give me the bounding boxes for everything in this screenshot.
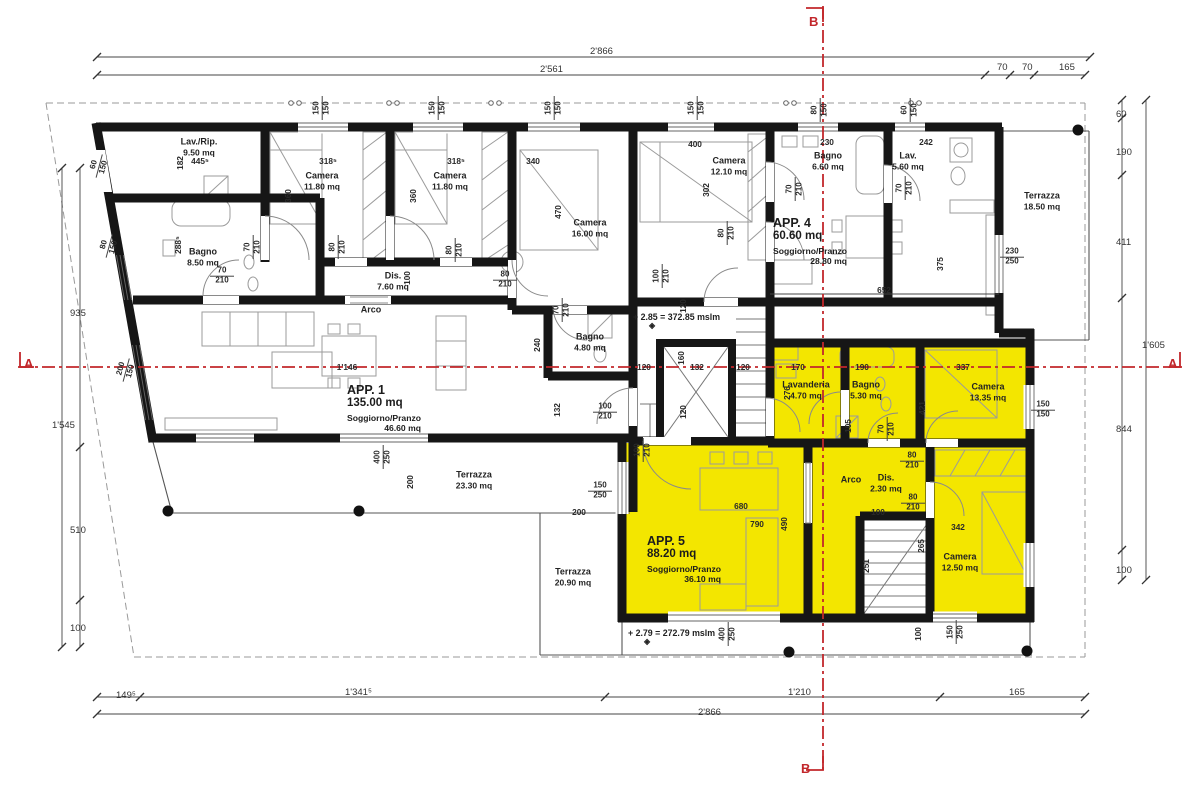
interior-dimension: 230 — [820, 137, 834, 147]
room-label: Camera11.80 mq — [304, 171, 340, 192]
opening-dimension: 150250 — [947, 620, 966, 644]
opening-dimension: 70210 — [896, 176, 915, 200]
interior-dimension: 490 — [779, 517, 789, 531]
apartment-label: APP. 588.20 mqSoggiorno/Pranzo36.10 mq — [647, 534, 721, 584]
room-label: Bagno6.60 mq — [812, 151, 844, 172]
interior-dimension: 400 — [688, 139, 702, 149]
opening-dimension: 100210 — [653, 264, 672, 288]
interior-dimension: 680 — [734, 501, 748, 511]
boundary-dimension: 1'210 — [788, 687, 811, 698]
interior-dimension: 105 — [843, 419, 853, 433]
room-label: Bagno8.50 mq — [187, 247, 219, 268]
opening-dimension: 70210 — [210, 267, 234, 286]
apartment-label: APP. 1135.00 mqSoggiorno/Pranzo46.60 mq — [347, 383, 421, 433]
interior-dimension: 160 — [676, 351, 686, 365]
interior-dimension: 190 — [855, 362, 869, 372]
boundary-dimension: 2'866 — [590, 46, 613, 57]
boundary-dimension: 60 — [1116, 109, 1127, 120]
room-label: Camera16.00 mq — [572, 218, 608, 239]
opening-dimension: 150150 — [1031, 401, 1055, 420]
interior-dimension: 200 — [572, 507, 586, 517]
room-label: Dis.2.30 mq — [870, 473, 902, 494]
opening-dimension: 80210 — [329, 235, 348, 259]
room-label: Lav./Rip.9.50 mq — [181, 137, 218, 158]
boundary-dimension: 70 — [1022, 62, 1033, 73]
interior-dimension: 120 — [678, 405, 688, 419]
opening-dimension: 70210 — [244, 235, 263, 259]
interior-dimension: 132 — [690, 362, 704, 372]
boundary-dimension: 2'561 — [540, 64, 563, 75]
opening-dimension: 80210 — [718, 221, 737, 245]
opening-dimension: 150150 — [429, 96, 448, 120]
apartment-label: APP. 460.60 mqSoggiorno/Pranzo28.80 mq — [773, 216, 847, 266]
interior-dimension: 132 — [552, 403, 562, 417]
interior-dimension: 120 — [678, 299, 688, 313]
interior-dimension: 242 — [919, 137, 933, 147]
boundary-dimension: 100 — [1116, 565, 1132, 576]
boundary-dimension: 149⁵ — [116, 690, 136, 701]
interior-dimension: 445⁵ — [191, 156, 209, 166]
room-label: Arco — [361, 305, 382, 316]
elevator — [660, 343, 732, 441]
floor-plan-drawing — [0, 0, 1200, 793]
room-label: Terrazza23.30 mq — [456, 470, 492, 491]
opening-dimension: 150150 — [313, 96, 332, 120]
interior-dimension: 652 — [877, 285, 891, 295]
interior-dimension: 342 — [951, 522, 965, 532]
interior-dimension: 375 — [935, 257, 945, 271]
opening-dimension: 150150 — [688, 96, 707, 120]
room-label: Terrazza18.50 mq — [1024, 191, 1060, 212]
interior-dimension: 318⁵ — [319, 156, 337, 166]
boundary-dimension: 1'341⁵ — [345, 687, 372, 698]
boundary-dimension: 70 — [997, 62, 1008, 73]
interior-dimension: 170 — [791, 362, 805, 372]
room-label: Camera11.80 mq — [432, 171, 468, 192]
interior-dimension: 251 — [861, 559, 871, 573]
interior-dimension: 470 — [553, 205, 563, 219]
boundary-dimension: 510 — [70, 525, 86, 536]
boundary-dimension: 1'605 — [1142, 340, 1165, 351]
opening-dimension: 100210 — [593, 403, 617, 422]
room-label: Camera12.10 mq — [711, 156, 747, 177]
interior-dimension: 182 — [175, 156, 185, 170]
interior-dimension: 240 — [532, 338, 542, 352]
interior-dimension: 302 — [701, 183, 711, 197]
room-label: Lav.5.60 mq — [892, 151, 924, 172]
boundary-dimension: 411 — [1116, 237, 1131, 248]
opening-dimension: 80210 — [900, 452, 924, 471]
room-label: Bagno5.30 mq — [850, 380, 882, 401]
opening-dimension: 230250 — [1000, 248, 1024, 267]
section-marker-a: A — [24, 356, 33, 371]
interior-dimension: 360 — [283, 189, 293, 203]
level-annotation: + 2.79 = 272.79 mslm◈ — [628, 628, 715, 646]
interior-dimension: 1'146 — [337, 362, 357, 372]
section-marker-b: B — [801, 761, 810, 776]
interior-dimension: 340 — [526, 156, 540, 166]
opening-dimension: 80210 — [493, 271, 517, 290]
boundary-dimension: 165 — [1059, 62, 1075, 73]
interior-dimension: 120 — [637, 362, 651, 372]
boundary-dimension: 935 — [70, 308, 86, 319]
interior-dimension: 276 — [782, 386, 792, 400]
section-marker-b: B — [809, 14, 818, 29]
interior-dimension: 120 — [736, 362, 750, 372]
interior-dimension: 360 — [408, 189, 418, 203]
boundary-dimension: 2'866 — [698, 707, 721, 718]
opening-dimension: 400250 — [374, 445, 393, 469]
opening-dimension: 70210 — [553, 298, 572, 322]
boundary-dimension: 100 — [70, 623, 86, 634]
boundary-dimension: 190 — [1116, 147, 1132, 158]
level-annotation: + 2.85 = 372.85 mslm◈ — [633, 312, 720, 330]
interior-dimension: 100 — [871, 507, 885, 517]
interior-dimension: 318⁵ — [447, 156, 465, 166]
section-marker-a: A — [1168, 356, 1177, 371]
interior-dimension: 337 — [956, 362, 970, 372]
opening-dimension: 70210 — [878, 417, 897, 441]
interior-dimension: 100 — [402, 271, 412, 285]
boundary-dimension: 1'545 — [52, 420, 75, 431]
opening-dimension: 100210 — [634, 438, 653, 462]
room-label: Camera12.50 mq — [942, 552, 978, 573]
opening-dimension: 80210 — [901, 494, 925, 513]
interior-dimension: 100 — [913, 627, 923, 641]
room-label: Terrazza20.90 mq — [555, 567, 591, 588]
interior-dimension: 421 — [917, 401, 927, 415]
boundary-dimension: 844 — [1116, 424, 1132, 435]
opening-dimension: 150250 — [588, 482, 612, 501]
room-label: Arco — [841, 475, 862, 486]
interior-dimension: 790 — [750, 519, 764, 529]
opening-dimension: 80210 — [446, 238, 465, 262]
interior-dimension: 288⁵ — [173, 236, 183, 254]
opening-dimension: 150150 — [545, 96, 564, 120]
opening-dimension: 70210 — [786, 177, 805, 201]
opening-dimension: 400250 — [719, 622, 738, 646]
room-label: Bagno4.80 mq — [574, 332, 606, 353]
interior-dimension: 200 — [405, 475, 415, 489]
room-label: Camera13.35 mq — [970, 382, 1006, 403]
opening-dimension: 60150 — [901, 98, 920, 122]
opening-dimension: 80150 — [811, 98, 830, 122]
floor-plan-page: Lav./Rip.9.50 mqCamera11.80 mqCamera11.8… — [0, 0, 1200, 793]
interior-dimension: 265 — [916, 539, 926, 553]
boundary-dimension: 165 — [1009, 687, 1025, 698]
